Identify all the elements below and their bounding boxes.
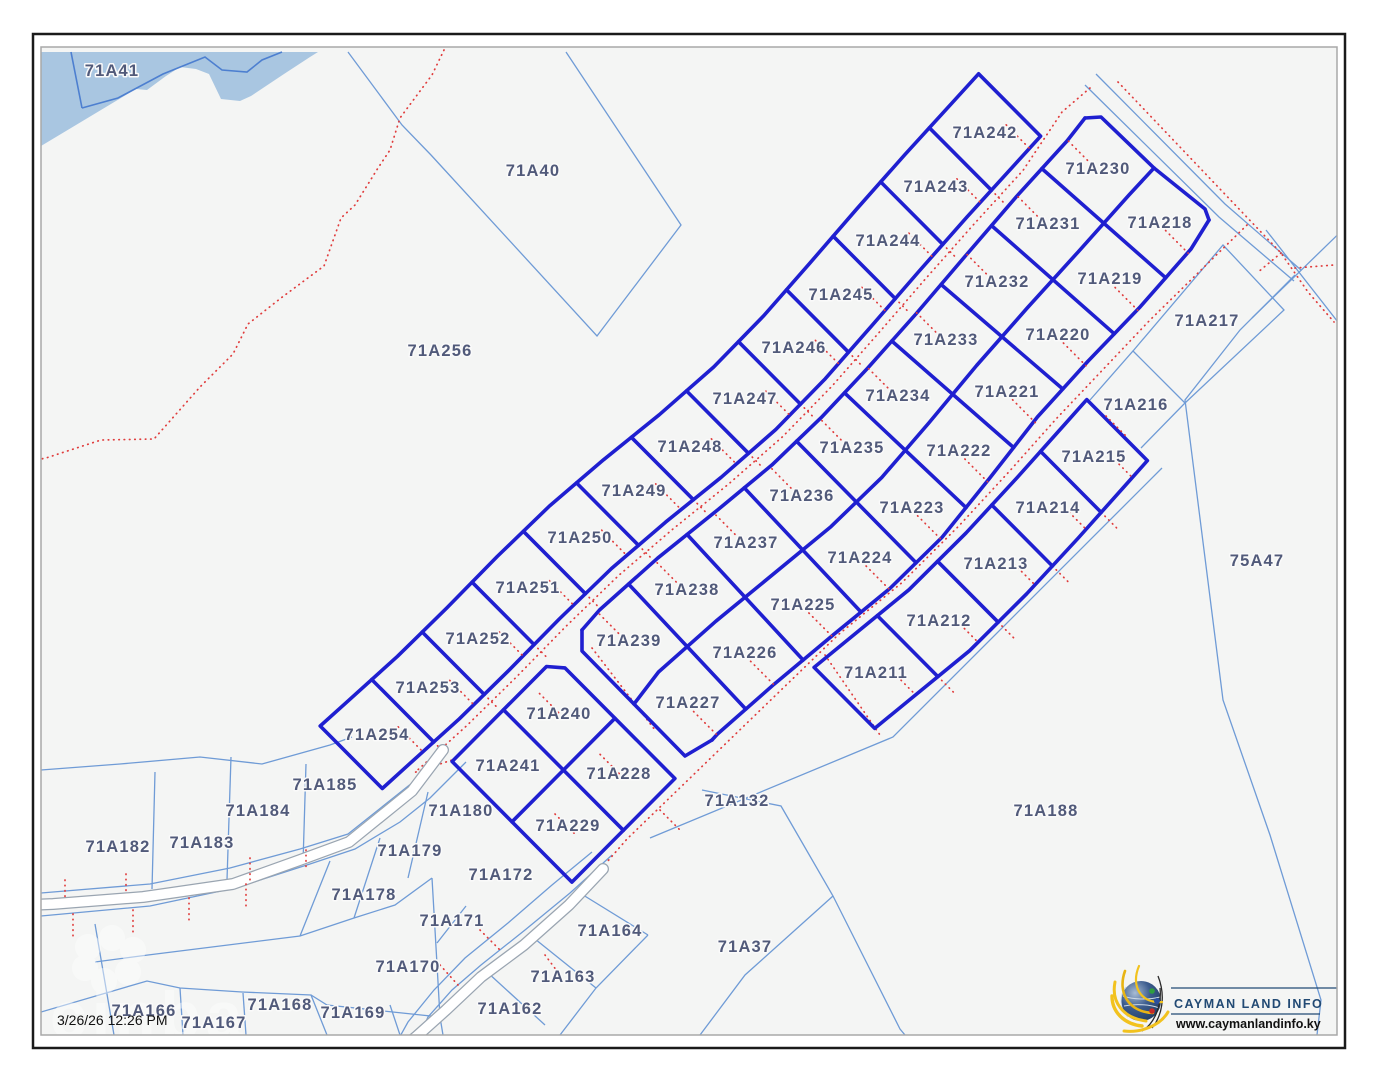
svg-text:71A226: 71A226: [713, 644, 778, 662]
svg-text:71A217: 71A217: [1175, 312, 1240, 330]
svg-text:71A256: 71A256: [408, 342, 473, 360]
svg-text:71A236: 71A236: [770, 487, 835, 505]
svg-text:71A170: 71A170: [376, 958, 441, 976]
svg-text:71A164: 71A164: [578, 922, 643, 940]
svg-text:71A232: 71A232: [965, 273, 1030, 291]
svg-text:71A218: 71A218: [1128, 214, 1193, 232]
svg-text:71A41: 71A41: [85, 62, 140, 80]
svg-text:71A172: 71A172: [469, 866, 534, 884]
svg-text:71A180: 71A180: [429, 802, 494, 820]
svg-text:71A247: 71A247: [713, 390, 778, 408]
svg-text:71A240: 71A240: [527, 705, 592, 723]
svg-text:71A237: 71A237: [714, 534, 779, 552]
svg-text:71A185: 71A185: [293, 776, 358, 794]
svg-text:71A169: 71A169: [321, 1004, 386, 1022]
svg-text:71A223: 71A223: [880, 499, 945, 517]
svg-text:71A228: 71A228: [587, 765, 652, 783]
svg-text:71A253: 71A253: [396, 679, 461, 697]
svg-text:71A212: 71A212: [907, 612, 972, 630]
svg-text:71A249: 71A249: [602, 482, 667, 500]
svg-text:71A222: 71A222: [927, 442, 992, 460]
svg-text:71A167: 71A167: [182, 1014, 247, 1032]
svg-text:71A254: 71A254: [345, 726, 410, 744]
svg-text:71A239: 71A239: [597, 632, 662, 650]
svg-text:71A229: 71A229: [536, 817, 601, 835]
svg-text:71A224: 71A224: [828, 549, 893, 567]
svg-text:CAYMAN LAND INFO: CAYMAN LAND INFO: [1174, 997, 1323, 1011]
svg-text:71A250: 71A250: [548, 529, 613, 547]
svg-text:71A221: 71A221: [975, 383, 1040, 401]
svg-text:71A215: 71A215: [1062, 448, 1127, 466]
svg-text:71A40: 71A40: [506, 162, 561, 180]
svg-text:71A241: 71A241: [476, 757, 541, 775]
svg-text:71A220: 71A220: [1026, 326, 1091, 344]
svg-text:71A178: 71A178: [332, 886, 397, 904]
svg-text:71A252: 71A252: [446, 630, 511, 648]
svg-text:71A225: 71A225: [771, 596, 836, 614]
svg-text:71A234: 71A234: [866, 387, 931, 405]
svg-text:71A244: 71A244: [856, 232, 921, 250]
svg-text:71A184: 71A184: [226, 802, 291, 820]
svg-text:71A231: 71A231: [1016, 215, 1081, 233]
svg-text:71A233: 71A233: [914, 331, 979, 349]
svg-text:71A238: 71A238: [655, 581, 720, 599]
svg-text:71A245: 71A245: [809, 286, 874, 304]
svg-text:71A251: 71A251: [496, 579, 561, 597]
svg-text:71A179: 71A179: [378, 842, 443, 860]
svg-text:71A182: 71A182: [86, 838, 151, 856]
svg-text:75A47: 75A47: [1230, 552, 1285, 570]
svg-text:71A216: 71A216: [1104, 396, 1169, 414]
svg-text:71A163: 71A163: [531, 968, 596, 986]
svg-text:71A230: 71A230: [1066, 160, 1131, 178]
svg-text:www.caymanlandinfo.ky: www.caymanlandinfo.ky: [1175, 1017, 1321, 1031]
svg-text:71A183: 71A183: [170, 834, 235, 852]
svg-text:71A246: 71A246: [762, 339, 827, 357]
svg-text:71A37: 71A37: [718, 938, 773, 956]
svg-text:71A242: 71A242: [953, 124, 1018, 142]
svg-text:71A211: 71A211: [844, 664, 908, 682]
svg-text:71A132: 71A132: [705, 792, 770, 810]
svg-text:71A162: 71A162: [478, 1000, 543, 1018]
svg-text:71A243: 71A243: [904, 178, 969, 196]
svg-text:71A219: 71A219: [1078, 270, 1143, 288]
svg-text:71A171: 71A171: [420, 912, 485, 930]
svg-text:71A213: 71A213: [964, 555, 1029, 573]
svg-text:71A235: 71A235: [820, 439, 885, 457]
svg-text:71A248: 71A248: [658, 438, 723, 456]
svg-text:71A168: 71A168: [248, 996, 313, 1014]
svg-text:3/26/26 12:26 PM: 3/26/26 12:26 PM: [57, 1012, 168, 1028]
svg-text:71A188: 71A188: [1014, 802, 1079, 820]
svg-text:71A227: 71A227: [656, 694, 721, 712]
svg-text:71A214: 71A214: [1016, 499, 1081, 517]
